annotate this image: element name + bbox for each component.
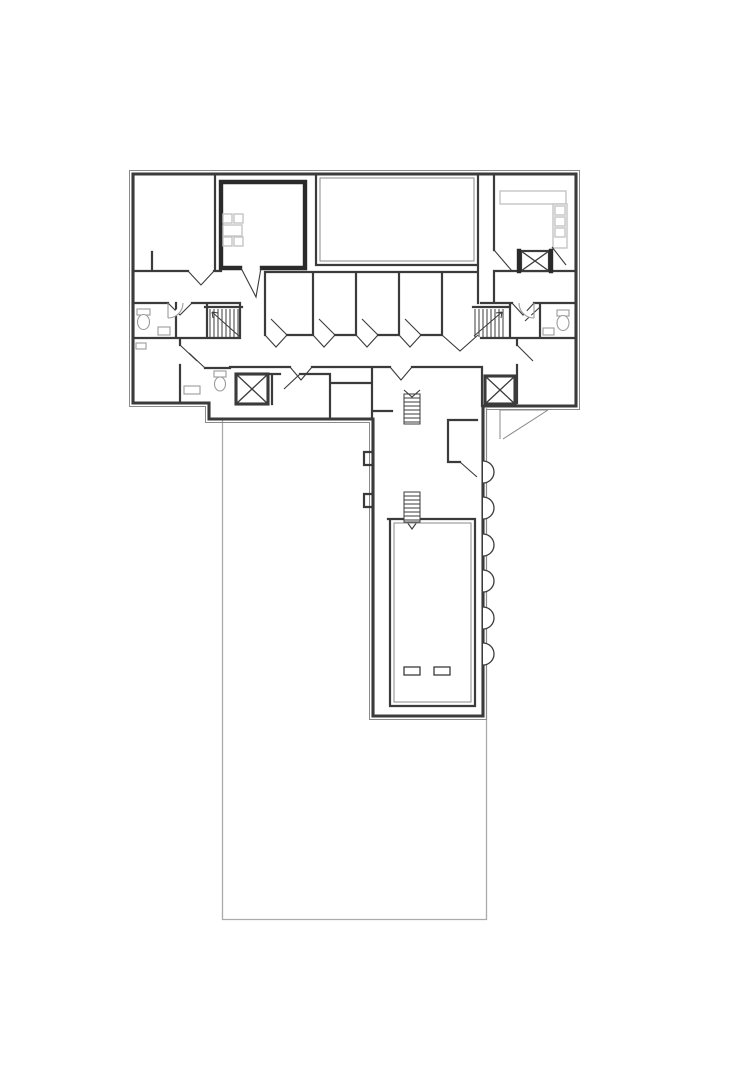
elevator-shaft-right xyxy=(485,376,515,404)
floor-plan-drawing xyxy=(0,0,750,1067)
toilet-icon xyxy=(557,316,569,331)
floor-opening xyxy=(434,667,450,675)
sink-icon xyxy=(184,386,200,394)
toilet-icon xyxy=(138,315,150,330)
counter-top xyxy=(500,191,566,204)
outer-wall-thin-line xyxy=(130,171,580,720)
large-hall-inner-line xyxy=(320,178,474,261)
half-column-icon xyxy=(483,643,494,665)
chair-icon xyxy=(234,237,243,246)
stairwell-right xyxy=(474,309,503,337)
kitchen-counter xyxy=(500,191,567,248)
building-perimeter-wall xyxy=(133,174,576,716)
half-column-icon xyxy=(483,534,494,556)
stairwell-left xyxy=(210,309,239,337)
chair-icon xyxy=(234,214,243,223)
chair-icon xyxy=(223,237,232,246)
toilet-icon xyxy=(215,377,226,391)
bathroom-northwest-fixtures xyxy=(137,309,170,335)
site-outline xyxy=(223,408,487,920)
appliance-icon xyxy=(555,217,565,226)
site-boundary-line xyxy=(223,408,487,920)
appliance-icon xyxy=(555,228,565,237)
exterior-ramp-lines xyxy=(500,410,548,439)
ladder-upper xyxy=(404,390,420,424)
bathroom-northeast-fixtures xyxy=(543,310,569,335)
sink-icon xyxy=(158,327,170,335)
table-icon xyxy=(223,225,242,236)
chair-icon xyxy=(223,214,232,223)
half-column-icon xyxy=(483,607,494,629)
south-wing xyxy=(364,390,548,702)
toilet-icon xyxy=(214,371,226,377)
appliance-icon xyxy=(555,206,565,215)
sink-icon xyxy=(543,328,554,335)
wing-alcove xyxy=(448,420,477,462)
wall-niches xyxy=(364,452,372,507)
half-column-icon xyxy=(483,570,494,592)
half-column-icon xyxy=(483,497,494,519)
floor-plan-page xyxy=(0,0,750,1067)
attached-columns xyxy=(483,461,494,665)
floor-opening xyxy=(404,667,420,675)
stair-direction-arrow xyxy=(474,312,502,336)
interior-walls xyxy=(133,174,576,706)
half-column-icon xyxy=(483,461,494,483)
table-with-chairs xyxy=(223,214,243,246)
elevator-shaft-left xyxy=(236,374,268,404)
cabinet-icon xyxy=(136,343,146,349)
duct-shaft-northeast xyxy=(519,251,551,271)
